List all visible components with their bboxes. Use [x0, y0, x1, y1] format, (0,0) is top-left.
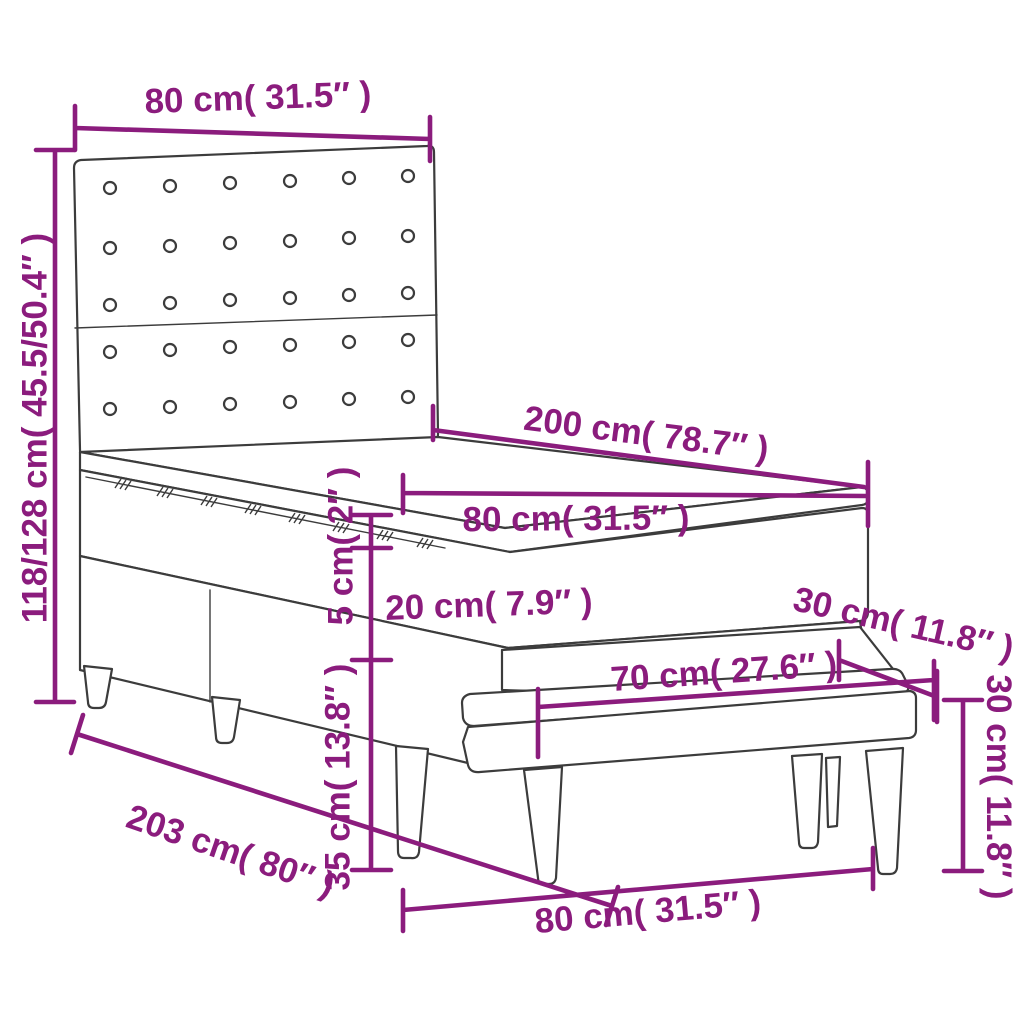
headboard-button	[164, 401, 176, 413]
headboard-button	[402, 287, 414, 299]
headboard-button	[343, 336, 355, 348]
headboard-button	[343, 289, 355, 301]
headboard-button	[343, 232, 355, 244]
headboard-button	[284, 339, 296, 351]
headboard-button	[104, 299, 116, 311]
headboard-button	[224, 341, 236, 353]
headboard-button	[104, 182, 116, 194]
headboard-button	[224, 398, 236, 410]
headboard-button	[284, 292, 296, 304]
product-dimension-image: 80 cm( 31.5″ ) 118/128 cm( 45.5/50.4″ ) …	[0, 0, 1024, 1024]
headboard-button	[224, 237, 236, 249]
label-base-height: 35 cm( 13.8″ )	[318, 664, 357, 891]
bed-leg-middle	[212, 697, 240, 743]
label-bench-height: 30 cm( 11.8″ )	[979, 675, 1018, 900]
headboard-button	[284, 396, 296, 408]
label-headboard-width: 80 cm( 31.5″ )	[144, 74, 372, 121]
label-mattress-width: 80 cm( 31.5″ )	[462, 498, 689, 539]
bench-leg-back-inner	[792, 754, 822, 848]
bench-leg-front-left	[524, 767, 562, 884]
label-total-length: 203 cm( 80″ )	[122, 797, 340, 905]
headboard-panel	[74, 146, 438, 456]
headboard-button	[284, 175, 296, 187]
label-mattress-thickness: 20 cm( 7.9″ )	[385, 582, 594, 628]
headboard-button	[284, 235, 296, 247]
dim-bench-height	[944, 700, 982, 871]
label-topper-thickness: 5 cm( 2″ )	[321, 467, 360, 626]
bench-leg-back-sliver	[826, 757, 840, 827]
label-bed-height: 118/128 cm( 45.5/50.4″ )	[15, 233, 54, 623]
headboard-button	[164, 344, 176, 356]
headboard-button	[402, 230, 414, 242]
headboard-button	[164, 297, 176, 309]
bed-leg-head-left	[84, 666, 112, 708]
headboard-button	[402, 170, 414, 182]
headboard-button	[104, 242, 116, 254]
headboard-button	[402, 391, 414, 403]
headboard-button	[104, 346, 116, 358]
dim-line	[944, 700, 982, 871]
headboard-button	[402, 334, 414, 346]
headboard-button	[224, 294, 236, 306]
headboard-button	[343, 172, 355, 184]
headboard-button	[164, 180, 176, 192]
headboard-button	[104, 403, 116, 415]
headboard-button	[164, 240, 176, 252]
headboard-button	[224, 177, 236, 189]
headboard-button	[343, 393, 355, 405]
diagram-canvas: 80 cm( 31.5″ ) 118/128 cm( 45.5/50.4″ ) …	[0, 0, 1024, 1024]
